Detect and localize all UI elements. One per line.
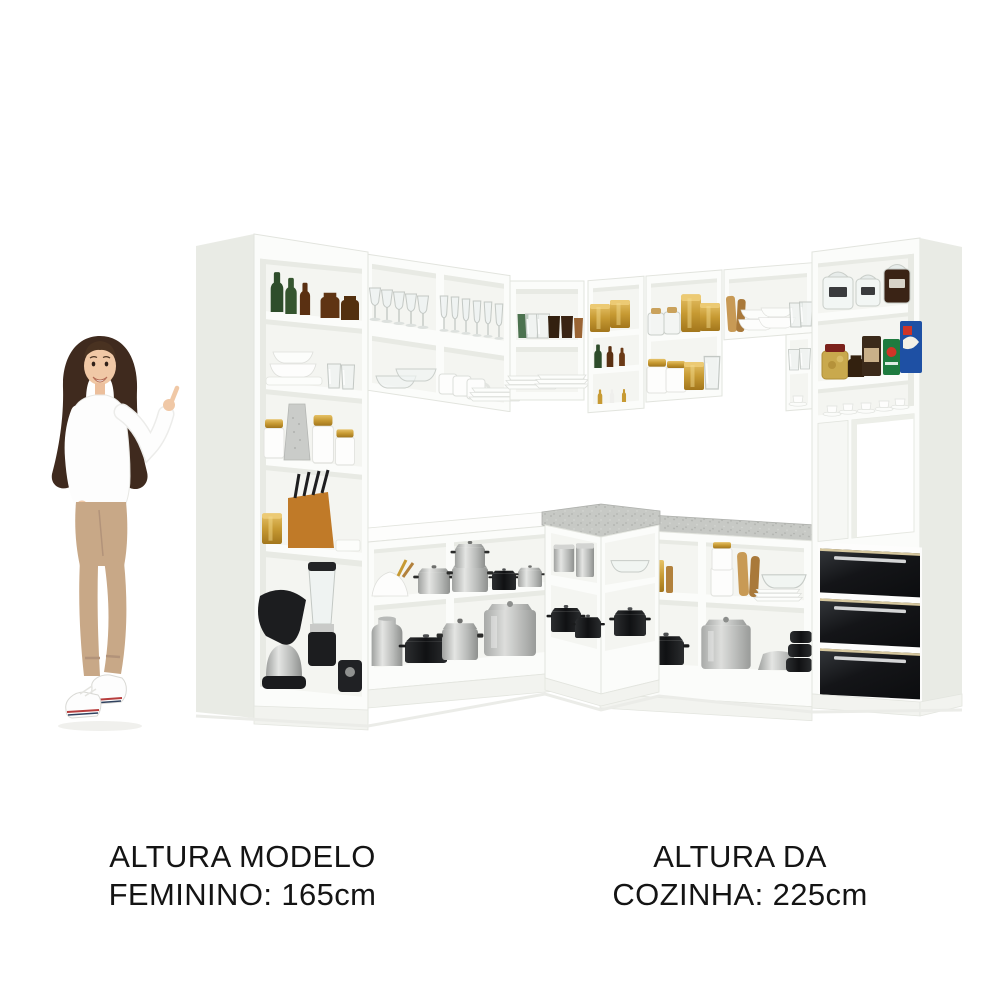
product-image: ALTURA MODELO FEMININO: 165cm ALTURA DA … — [0, 0, 1000, 1000]
appliance-niche — [852, 414, 914, 538]
right-tall-cabinet — [812, 238, 962, 716]
caption-line: COZINHA: 225cm — [550, 876, 930, 914]
caption-model-height: ALTURA MODELO FEMININO: 165cm — [55, 838, 430, 914]
caption-line: ALTURA DA — [550, 838, 930, 876]
drawer-3 — [820, 648, 920, 699]
upper-corner-unit — [505, 281, 589, 400]
model-sneakers — [66, 675, 127, 718]
grater — [284, 404, 310, 460]
black-drawers-unit — [818, 542, 922, 703]
model-pointing-hand — [163, 388, 177, 411]
white-gold-jars-and-pitcher — [647, 357, 720, 393]
caption-kitchen-height: ALTURA DA COZINHA: 225cm — [550, 838, 930, 914]
drawer-1 — [820, 548, 920, 597]
white-plate-stacks — [505, 375, 589, 389]
blender — [308, 562, 336, 666]
tall-door-panel — [818, 420, 848, 541]
caption-line: FEMININO: 165cm — [55, 876, 430, 914]
kitchen-illustration — [0, 0, 1000, 820]
gold-canisters — [590, 300, 630, 332]
silver-canister — [554, 545, 574, 572]
model-shadow — [58, 721, 142, 731]
upper-shelves-right-run — [588, 263, 813, 427]
knife-block — [288, 492, 334, 548]
drawer-2 — [820, 598, 920, 647]
upper-shelves-left-run — [366, 254, 523, 412]
cereal-box — [900, 321, 922, 373]
model-photo — [52, 336, 177, 731]
left-tall-cabinet — [196, 234, 368, 730]
coffee-package-green — [883, 339, 900, 375]
model-left-arm — [72, 412, 80, 500]
base-corner-unit — [542, 504, 660, 706]
base-cabinets-left — [368, 511, 552, 708]
pickle-jar — [822, 344, 848, 379]
caption-line: ALTURA MODELO — [55, 838, 430, 876]
